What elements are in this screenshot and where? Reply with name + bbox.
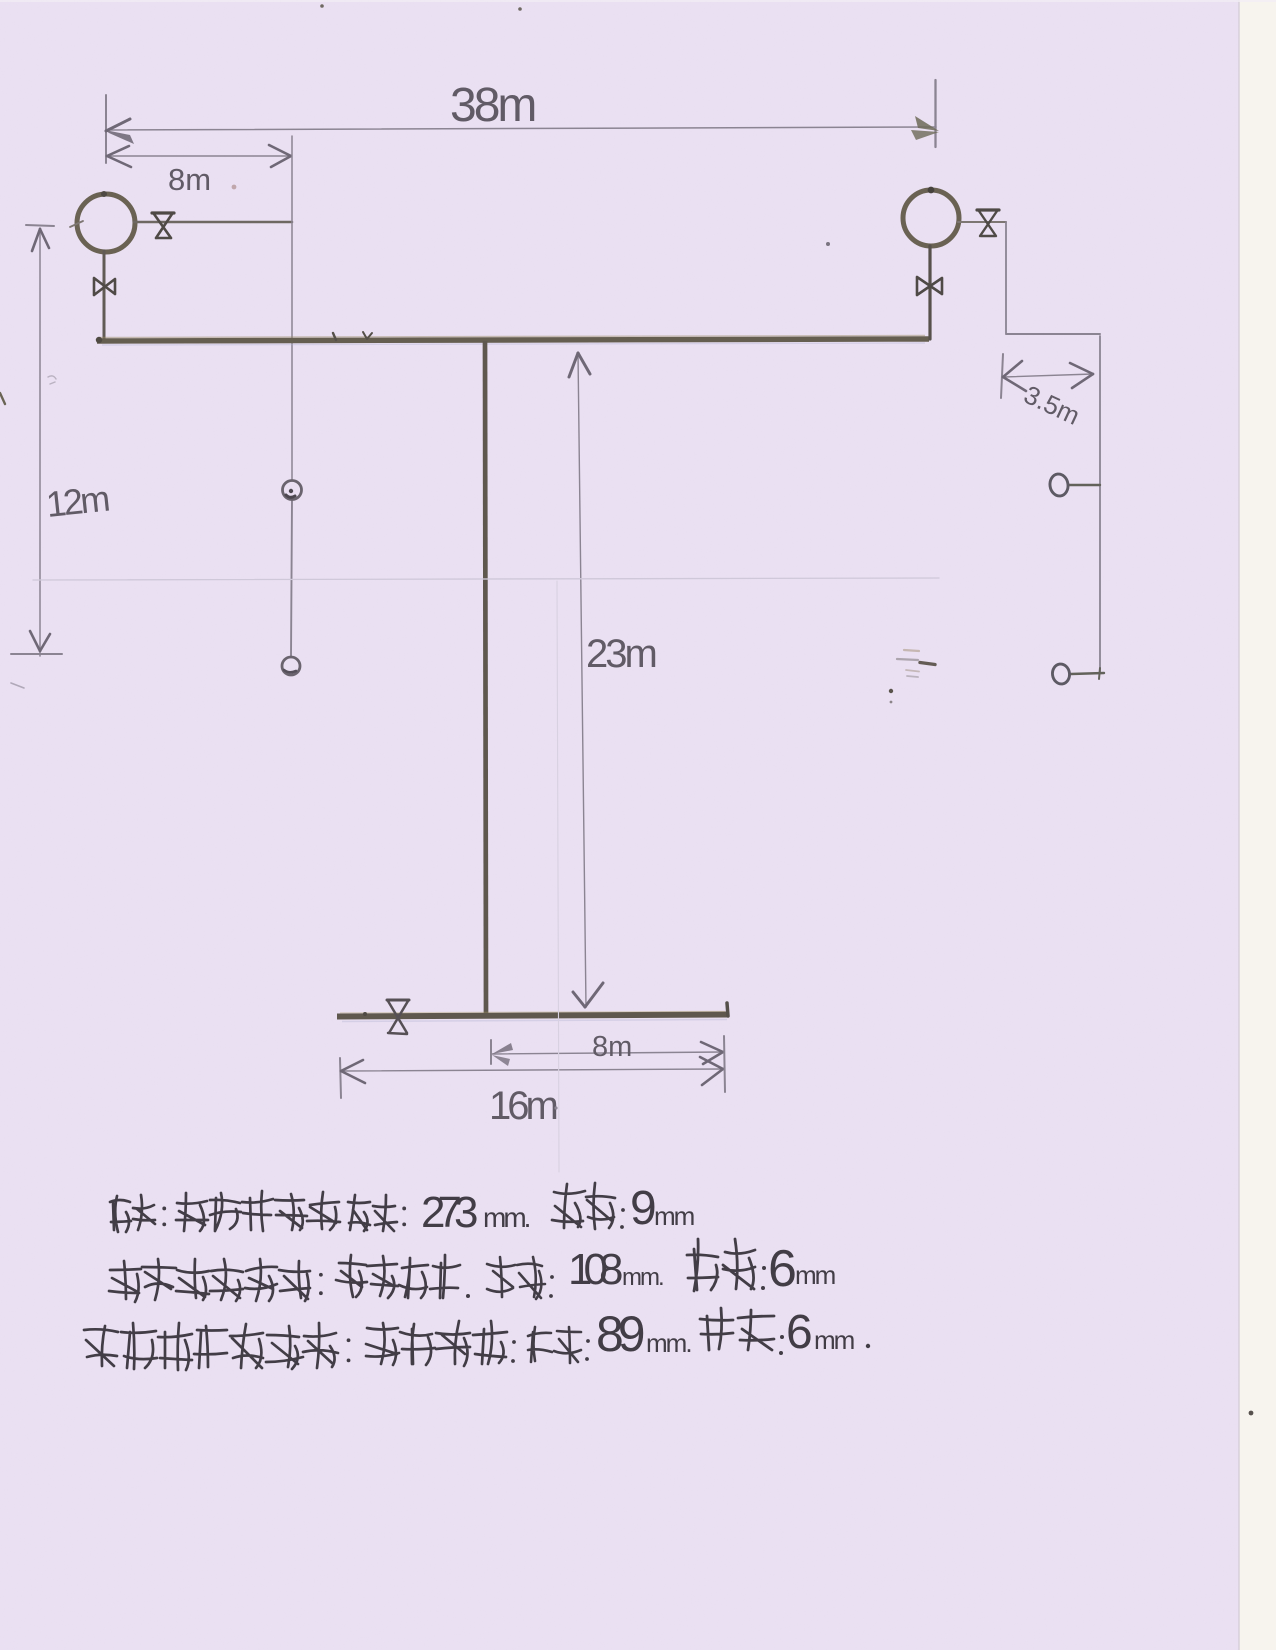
svg-text:89: 89 [596, 1306, 644, 1362]
svg-text:8m: 8m [592, 1031, 632, 1063]
svg-text:mm.: mm. [622, 1264, 663, 1291]
svg-text:38m: 38m [450, 79, 534, 132]
svg-text:mm: mm [814, 1325, 854, 1355]
svg-text:273: 273 [421, 1188, 477, 1237]
svg-text:mm: mm [654, 1201, 694, 1231]
svg-text:9: 9 [630, 1182, 657, 1235]
svg-text:mm: mm [795, 1260, 835, 1290]
svg-text:108: 108 [568, 1245, 622, 1294]
svg-text:mm.: mm. [483, 1202, 530, 1233]
svg-text:mm.: mm. [646, 1328, 691, 1358]
svg-text:16m: 16m [489, 1084, 556, 1128]
svg-text:12m: 12m [44, 478, 110, 525]
svg-text:23m: 23m [586, 632, 655, 676]
svg-text:8m: 8m [168, 162, 211, 197]
svg-text:6: 6 [768, 1240, 797, 1298]
svg-text:6: 6 [786, 1306, 813, 1359]
